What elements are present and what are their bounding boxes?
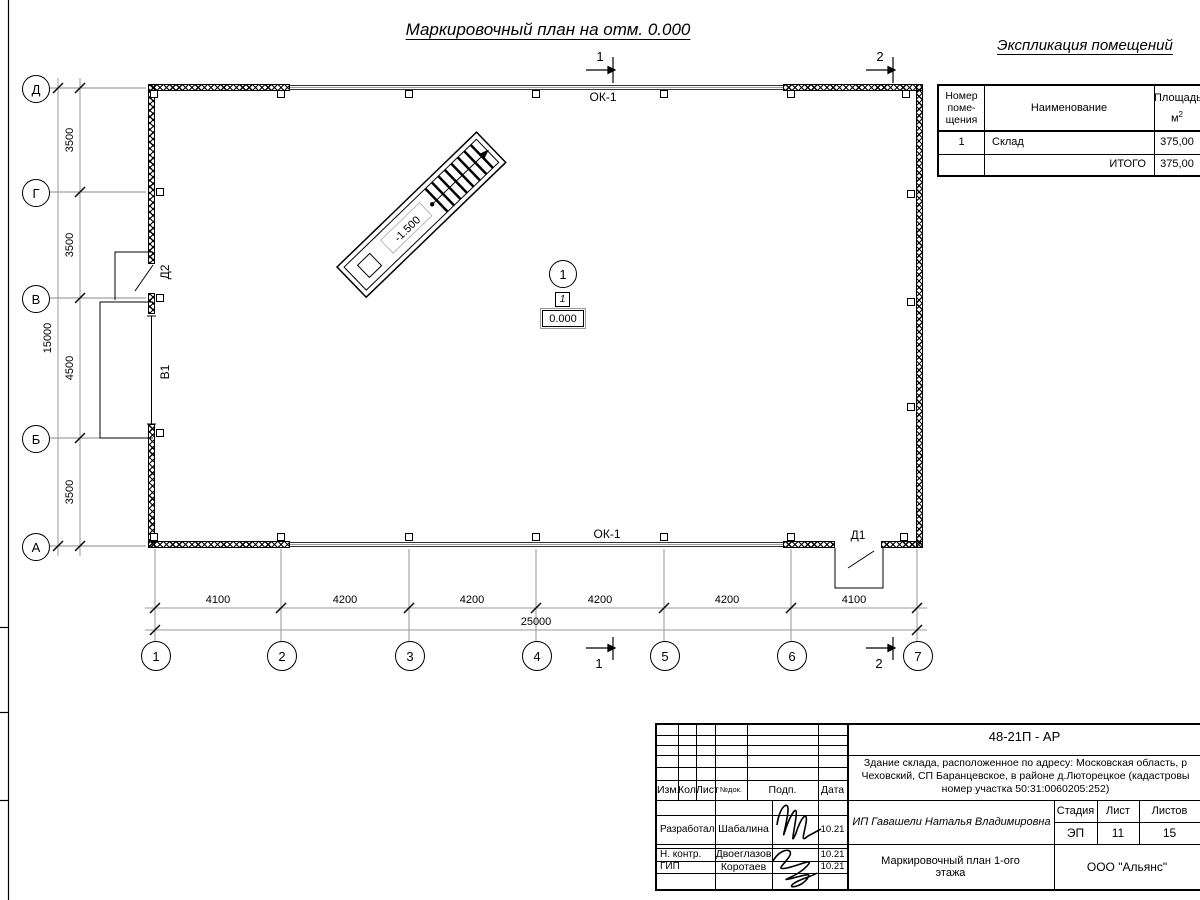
column bbox=[532, 90, 540, 98]
stage-value: ЭП bbox=[1054, 822, 1097, 844]
sheet-value: 11 bbox=[1097, 822, 1139, 844]
sheets-label: Листов bbox=[1139, 800, 1200, 822]
name-gip: Коротаев bbox=[715, 861, 772, 873]
column bbox=[156, 429, 164, 437]
sheet-label: Лист bbox=[1097, 800, 1139, 822]
drawing-sheet: -1.500 Маркировочный план на отм. 0.000 … bbox=[0, 0, 1200, 900]
wall-top-left bbox=[148, 84, 290, 91]
column bbox=[907, 403, 915, 411]
column bbox=[405, 533, 413, 541]
column bbox=[156, 188, 164, 196]
column bbox=[150, 533, 158, 541]
column bbox=[405, 90, 413, 98]
wall-bottom-left bbox=[148, 541, 290, 548]
explication-col-area: Площадь, bbox=[1154, 92, 1200, 104]
dim-bottom-total: 25000 bbox=[506, 616, 566, 628]
dim-bottom-3: 4200 bbox=[442, 594, 502, 606]
sheet-title: Маркировочный план 1-ого этажа bbox=[847, 844, 1054, 889]
role-ncontrol: Н. контр. bbox=[660, 848, 715, 861]
column bbox=[907, 190, 915, 198]
wall-right bbox=[916, 84, 923, 548]
axis-circle-B: Б bbox=[22, 425, 50, 453]
axis-circle-V: В bbox=[22, 285, 50, 313]
axis-circle-2: 2 bbox=[267, 641, 297, 671]
axis-circle-6: 6 bbox=[777, 641, 807, 671]
window-band-bottom bbox=[290, 542, 783, 547]
column bbox=[787, 90, 795, 98]
dim-left-3: 4500 bbox=[64, 356, 76, 380]
drawing-title: Маркировочный план на отм. 0.000 bbox=[298, 20, 798, 40]
project-description-2: Чеховский, СП Баранцевское, в районе д.Л… bbox=[851, 770, 1200, 782]
column bbox=[660, 90, 668, 98]
axis-circle-A: А bbox=[22, 533, 50, 561]
dim-left-1: 3500 bbox=[64, 128, 76, 152]
wall-bottom-right-1 bbox=[783, 541, 835, 548]
explication-col-number: Номер поме- щения bbox=[939, 90, 984, 126]
project-description-1: Здание склада, расположенное по адресу: … bbox=[851, 757, 1200, 769]
name-ncontrol: Двоеглазов bbox=[715, 848, 772, 861]
wall-left-upper bbox=[148, 84, 155, 264]
axis-circle-4: 4 bbox=[522, 641, 552, 671]
section-mark-2-bottom: 2 bbox=[872, 656, 886, 671]
section-mark-2-top: 2 bbox=[873, 49, 887, 64]
column bbox=[277, 90, 285, 98]
axis-circle-5: 5 bbox=[650, 641, 680, 671]
col-kol: Кол. bbox=[678, 780, 696, 800]
door-label-d1: Д1 bbox=[833, 528, 883, 542]
column bbox=[907, 298, 915, 306]
dim-bottom-6: 4100 bbox=[824, 594, 884, 606]
room-number-marker: 1 bbox=[549, 260, 577, 288]
col-ndok: №док. bbox=[715, 780, 747, 800]
project-code: 48-21П - АР bbox=[849, 729, 1200, 744]
wall-left-pier bbox=[148, 293, 155, 314]
room-row-area: 375,00 bbox=[1154, 130, 1200, 154]
stage-label: Стадия bbox=[1054, 800, 1097, 822]
column bbox=[156, 294, 164, 302]
explication-col-name: Наименование bbox=[984, 86, 1154, 130]
floor-elevation-marker: 0.000 bbox=[542, 310, 584, 327]
section-mark-1-top: 1 bbox=[593, 49, 607, 64]
title-block: 48-21П - АР Здание склада, расположенное… bbox=[655, 723, 1200, 891]
door-label-d2: Д2 bbox=[158, 265, 172, 280]
dim-bottom-1: 4100 bbox=[188, 594, 248, 606]
room-row-number: 1 bbox=[939, 130, 984, 154]
dim-left-total: 15000 bbox=[42, 323, 54, 354]
explication-table: Номер поме- щения Наименование Площадь, … bbox=[937, 84, 1200, 177]
axis-circle-3: 3 bbox=[395, 641, 425, 671]
column bbox=[900, 533, 908, 541]
column bbox=[902, 90, 910, 98]
column bbox=[277, 533, 285, 541]
column bbox=[787, 533, 795, 541]
col-izm: Изм. bbox=[657, 780, 678, 800]
dim-left-4: 3500 bbox=[64, 480, 76, 504]
section-mark-1-bottom: 1 bbox=[592, 656, 606, 671]
dim-bottom-5: 4200 bbox=[697, 594, 757, 606]
stairs-object: -1.500 bbox=[337, 132, 506, 297]
column bbox=[532, 533, 540, 541]
signature-icon bbox=[765, 843, 825, 891]
explication-title: Экспликация помещений bbox=[955, 37, 1200, 54]
name-developed: Шабалина bbox=[715, 815, 772, 844]
dim-bottom-4: 4200 bbox=[570, 594, 630, 606]
window-label-top: ОК-1 bbox=[578, 90, 628, 104]
room-row-name: Склад bbox=[992, 130, 1152, 154]
explication-col-area-unit: м2 bbox=[1154, 110, 1200, 125]
dim-left-2: 3500 bbox=[64, 233, 76, 257]
role-developed: Разработал bbox=[660, 815, 715, 844]
axis-circle-7: 7 bbox=[903, 641, 933, 671]
dim-bottom-2: 4200 bbox=[315, 594, 375, 606]
window-label-bottom: ОК-1 bbox=[582, 527, 632, 541]
axis-circle-1: 1 bbox=[141, 641, 171, 671]
project-description-3: номер участка 50:31:0060205:252) bbox=[851, 783, 1200, 795]
stairs-elevation-label: -1.500 bbox=[392, 214, 423, 244]
total-label: ИТОГО bbox=[984, 154, 1154, 175]
room-type-marker: 1 bbox=[555, 292, 570, 307]
organization-name: ООО "Альянс" bbox=[1054, 844, 1200, 889]
axis-circle-G: Г bbox=[22, 179, 50, 207]
column bbox=[660, 533, 668, 541]
role-gip: ГИП bbox=[660, 861, 715, 873]
column bbox=[150, 90, 158, 98]
total-area: 375,00 bbox=[1154, 154, 1200, 175]
axis-circle-D: Д bbox=[22, 75, 50, 103]
gate-label-v1: В1 bbox=[158, 365, 172, 380]
client-name: ИП Гавашели Наталья Владимировна bbox=[849, 800, 1054, 844]
col-list: Лист bbox=[696, 780, 715, 800]
wall-left-lower bbox=[148, 424, 155, 548]
sheets-value: 15 bbox=[1139, 822, 1200, 844]
